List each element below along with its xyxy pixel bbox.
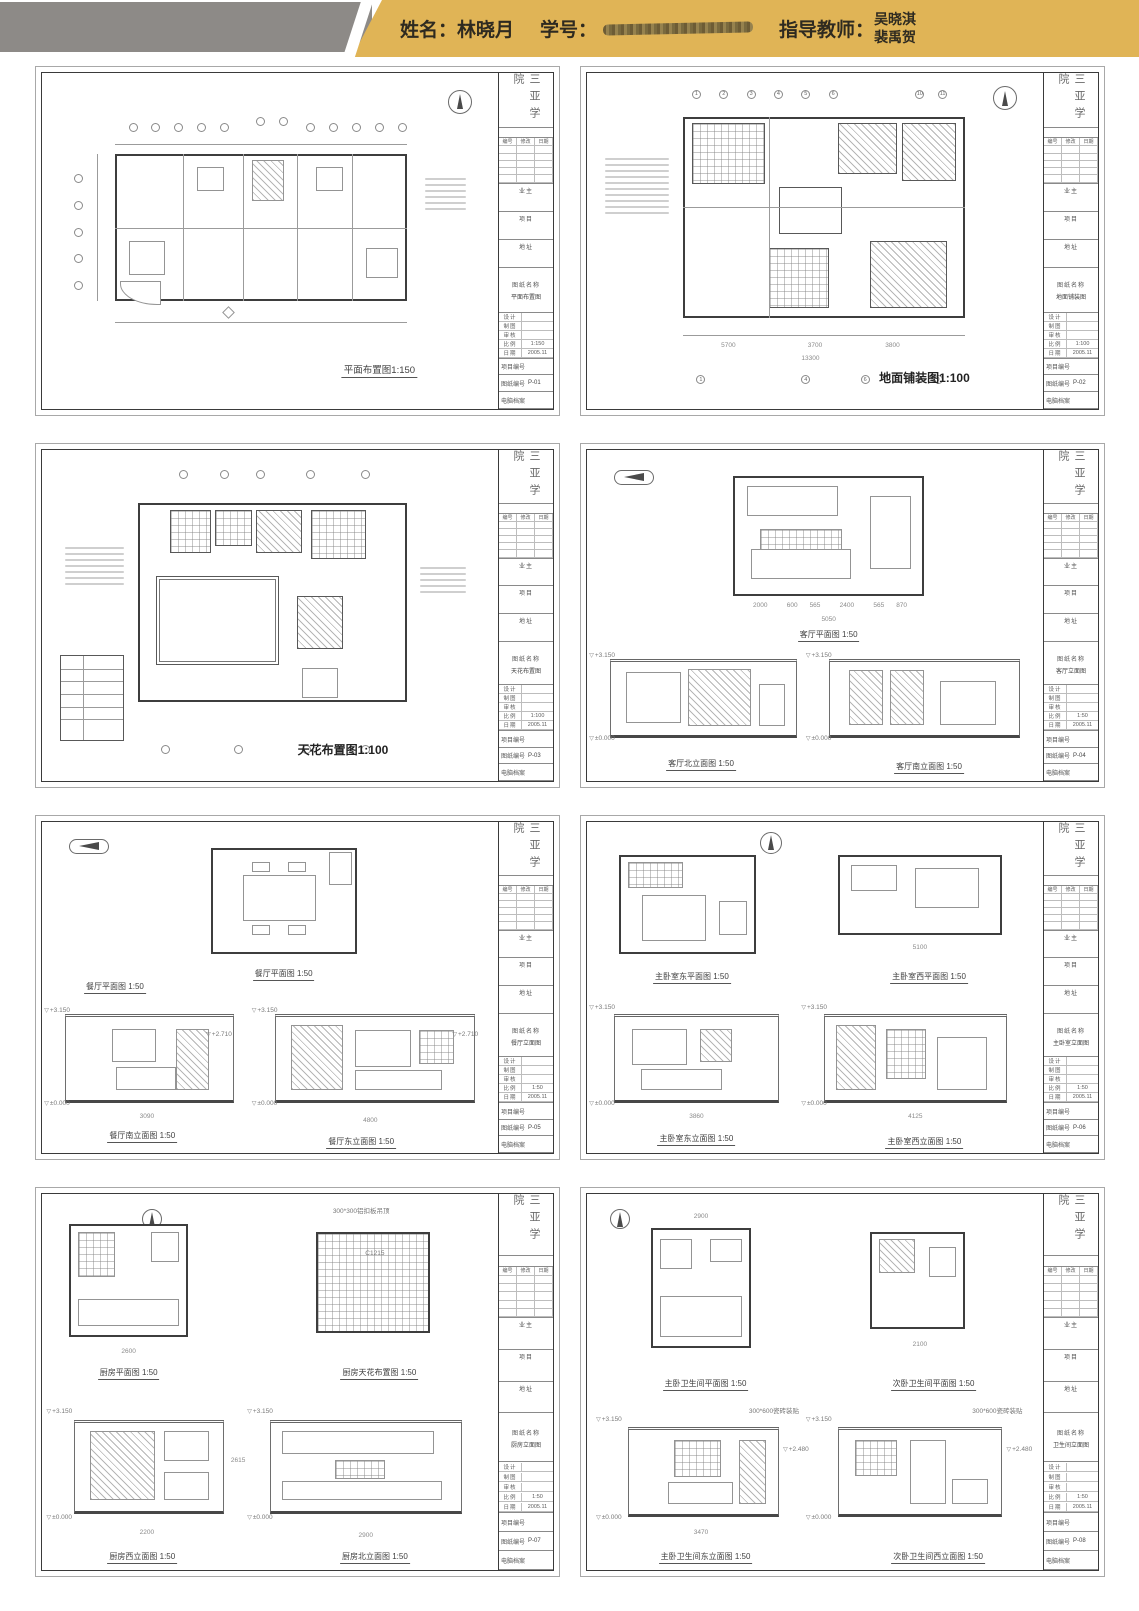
drawing-caption: 餐厅平面图 1:50 xyxy=(84,981,146,994)
level-marker: ▽+3.150 xyxy=(47,1408,73,1415)
dim-label: 2000 xyxy=(753,602,767,609)
axis-bubble: 5 xyxy=(801,90,810,99)
level-marker: ▽+3.150 xyxy=(806,1416,832,1423)
furniture xyxy=(870,496,911,569)
drawing-area-bathrooms: 2900 2100 主卧卫生间平面图 1:50 次卧卫生间平面图 1:50 30… xyxy=(587,1194,1043,1570)
owner-box: 业主 xyxy=(1044,184,1098,212)
paved-room xyxy=(870,241,948,308)
axis-bubble: 11 xyxy=(938,90,947,99)
drawing-name-box: 图纸名称 地面铺装图 xyxy=(1044,268,1098,312)
sheet-no-box: 图纸编号P-03 xyxy=(499,748,553,765)
title-block-spacer xyxy=(499,504,553,514)
project-box: 项目 xyxy=(1044,212,1098,240)
level-triangle-icon: ▽ xyxy=(47,1408,52,1415)
scale-value: 1:150 xyxy=(522,341,553,347)
drawing-caption: 地面铺装图1:100 xyxy=(877,369,972,387)
header-content: 姓名： 林晓月 学号： 指导教师： 吴晓淇 裴禹贺 xyxy=(400,0,1129,57)
project-no-box: 项目编号 xyxy=(1044,359,1098,376)
level-triangle-icon: ▽ xyxy=(247,1408,252,1415)
level-marker: ▽+3.150 xyxy=(252,1007,278,1014)
level-triangle-icon: ▽ xyxy=(596,1416,601,1423)
rev-col-header: 修改 xyxy=(517,138,535,145)
sheet-no-value: P-01 xyxy=(528,380,541,386)
archive-box: 电脑档案 xyxy=(1044,764,1098,781)
ceiling-lamp-zone xyxy=(302,668,338,698)
drawing-caption: 主卧室东平面图 1:50 xyxy=(653,971,731,984)
ceiling-zone xyxy=(256,510,302,553)
title-block-spacer xyxy=(1044,504,1098,514)
kitchen-ceiling-plan xyxy=(316,1232,430,1334)
north-arrow-icon xyxy=(610,1209,630,1229)
drawing-caption: 厨房西立面图 1:50 xyxy=(107,1551,177,1564)
paved-room xyxy=(838,123,897,173)
drawing-board: 平面布置图1:150 三亚学院 编号修改日期 业主 项目 地址 图纸名称 平面布… xyxy=(35,66,1105,1577)
date-value: 2005.11 xyxy=(1067,1094,1098,1100)
title-block-spacer xyxy=(499,876,553,886)
student-id-label: 学号： xyxy=(540,15,597,42)
level-marker: ▽+3.150 xyxy=(247,1408,273,1415)
drawing-name-box: 图纸名称 天花布置图 xyxy=(499,642,553,685)
owner-box: 业主 xyxy=(499,184,553,212)
scale-value: 1:100 xyxy=(1067,341,1098,347)
note-label: C1215 xyxy=(365,1250,384,1257)
archive-box: 电脑档案 xyxy=(499,1136,553,1153)
revision-table: 编号修改日期 xyxy=(1044,514,1098,558)
student-name-field: 姓名： 林晓月 xyxy=(400,15,514,42)
project-box: 项目 xyxy=(499,212,553,240)
drawing-caption: 客厅南立面图 1:50 xyxy=(894,761,964,774)
north-arrow-icon xyxy=(69,839,109,854)
elevation-north xyxy=(270,1420,462,1514)
vanity xyxy=(851,865,897,891)
furniture xyxy=(316,167,343,191)
stair-core xyxy=(252,160,284,200)
level-triangle-icon: ▽ xyxy=(589,735,594,742)
title-block: 三亚学院 编号修改日期 业主 项目 地址 图纸名称 平面布置图 设计 制图 审核… xyxy=(499,73,553,409)
furniture xyxy=(366,248,398,278)
revision-table: 编号修改日期 xyxy=(1044,138,1098,183)
sink xyxy=(710,1239,742,1262)
room xyxy=(779,187,843,234)
sheet-no-value: P-02 xyxy=(1073,380,1086,386)
title-block-spacer xyxy=(1044,128,1098,138)
school-name: 三亚学院 xyxy=(1044,1194,1098,1256)
axis-bubble: 3 xyxy=(747,90,756,99)
drawing-caption: 平面布置图1:150 xyxy=(342,362,417,378)
level-marker: ▽±0.000 xyxy=(806,735,831,742)
advisor-label: 指导教师： xyxy=(779,15,874,42)
level-triangle-icon: ▽ xyxy=(806,735,811,742)
north-arrow-icon xyxy=(760,832,782,854)
drawing-area-master-bedroom: 5100 主卧室东平面图 1:50 主卧室西平面图 1:50 ▽+3.150 ▽… xyxy=(587,822,1043,1153)
header-gray-band xyxy=(0,2,372,52)
school-name: 三亚学院 xyxy=(499,73,553,128)
date-value: 2005.11 xyxy=(522,350,553,356)
info-table: 设计 制图 审核 比例1:100 日期2005.11 xyxy=(499,685,553,731)
illegible-notes xyxy=(65,543,124,589)
level-triangle-icon: ▽ xyxy=(783,1446,788,1453)
level-marker: ▽±0.000 xyxy=(806,1514,831,1521)
info-table: 设计 制图 审核 比例1:50 日期2005.11 xyxy=(1044,1057,1098,1103)
rev-col-header: 日期 xyxy=(1080,886,1098,893)
sofa xyxy=(751,549,851,579)
level-triangle-icon: ▽ xyxy=(806,652,811,659)
redacted-student-id xyxy=(603,21,753,35)
owner-box: 业主 xyxy=(499,559,553,587)
scale-value: 1:50 xyxy=(1067,1085,1098,1091)
rev-col-header: 日期 xyxy=(535,886,553,893)
level-marker: ▽+3.150 xyxy=(589,1004,615,1011)
dim-label: 3700 xyxy=(808,342,822,349)
drawing-caption: 主卧室西平面图 1:50 xyxy=(890,971,968,984)
title-block: 三亚学院 编号修改日期 业主 项目 地址 图纸名称 天花布置图 设计 制图 审核… xyxy=(499,450,553,781)
level-triangle-icon: ▽ xyxy=(47,1514,52,1521)
rev-col-header: 修改 xyxy=(517,514,535,521)
north-arrow-icon xyxy=(993,86,1017,110)
level-triangle-icon: ▽ xyxy=(589,1004,594,1011)
rev-col-header: 修改 xyxy=(1062,514,1080,521)
sheet-no-box: 图纸编号P-05 xyxy=(499,1120,553,1137)
bed xyxy=(642,895,706,941)
level-marker: ▽+3.150 xyxy=(589,652,615,659)
sheet-no-box: 图纸编号P-06 xyxy=(1044,1120,1098,1137)
paved-room xyxy=(902,123,957,180)
project-no-box: 项目编号 xyxy=(499,731,553,748)
name-value: 林晓月 xyxy=(457,15,514,42)
drawing-caption: 厨房北立面图 1:50 xyxy=(340,1551,410,1564)
wardrobe xyxy=(628,862,683,888)
bathtub xyxy=(660,1296,742,1337)
rev-col-header: 编号 xyxy=(499,886,517,893)
drawing-caption: 主卧卫生间东立面图 1:50 xyxy=(659,1551,753,1564)
drawing-name-box: 图纸名称 卫生间立面图 xyxy=(1044,1413,1098,1462)
symbol-diamond xyxy=(223,306,236,319)
date-value: 2005.11 xyxy=(1067,722,1098,728)
drawing-name-value: 卫生间立面图 xyxy=(1053,1440,1089,1449)
info-table: 设计 制图 审核 比例1:50 日期2005.11 xyxy=(499,1462,553,1513)
level-triangle-icon: ▽ xyxy=(252,1007,257,1014)
level-triangle-icon: ▽ xyxy=(589,652,594,659)
rev-col-header: 修改 xyxy=(1062,138,1080,145)
sheet-no-box: 图纸编号P-01 xyxy=(499,375,553,392)
address-box: 地址 xyxy=(499,1382,553,1414)
drawing-caption: 客厅北立面图 1:50 xyxy=(666,758,736,771)
dim-label: 3470 xyxy=(694,1529,708,1536)
rev-col-header: 编号 xyxy=(499,514,517,521)
title-block: 三亚学院 编号修改日期 业主 项目 地址 图纸名称 地面铺装图 设计 制图 审核… xyxy=(1044,73,1098,409)
date-value: 2005.11 xyxy=(522,1094,553,1100)
drawing-name-value: 餐厅立面图 xyxy=(511,1038,541,1047)
sheet-no-box: 图纸编号P-04 xyxy=(1044,748,1098,765)
drawing-area-floor-paving: 1 2 3 4 5 6 10 11 5700 3700 38 xyxy=(587,73,1043,409)
sheet-no-value: P-05 xyxy=(528,1125,541,1131)
drawing-name-box: 图纸名称 主卧室立面图 xyxy=(1044,1014,1098,1057)
info-table: 设计 制图 审核 比例1:100 日期2005.11 xyxy=(1044,313,1098,359)
chair xyxy=(288,925,306,935)
level-marker: ▽+3.150 xyxy=(44,1007,70,1014)
level-marker: ▽±0.000 xyxy=(589,1100,614,1107)
project-no-box: 项目编号 xyxy=(499,1103,553,1120)
drawing-area-dining-room: 餐厅平面图 1:50 餐厅平面图 1:50 ▽+3.150 ▽+3.150 ▽+… xyxy=(42,822,498,1153)
level-triangle-icon: ▽ xyxy=(252,1100,257,1107)
rev-col-header: 日期 xyxy=(535,138,553,145)
axis-bubble: 1 xyxy=(692,90,701,99)
sheet-ceiling-plan: 天花布置图1:100 三亚学院 编号修改日期 业主 项目 地址 图纸名称 天花布… xyxy=(35,443,560,788)
title-block: 三亚学院 编号修改日期 业主 项目 地址 图纸名称 厨房立面图 设计 制图 审核… xyxy=(499,1194,553,1570)
owner-box: 业主 xyxy=(499,931,553,959)
level-triangle-icon: ▽ xyxy=(452,1031,457,1038)
ceiling-feature xyxy=(156,576,279,665)
axis-bubble: 6 xyxy=(829,90,838,99)
drawing-name-value: 主卧室立面图 xyxy=(1053,1038,1089,1047)
elevation-south xyxy=(65,1014,234,1103)
level-triangle-icon: ▽ xyxy=(801,1100,806,1107)
furniture xyxy=(129,241,165,275)
counter xyxy=(78,1299,178,1325)
project-no-box: 项目编号 xyxy=(1044,1513,1098,1532)
archive-box: 电脑档案 xyxy=(499,1551,553,1570)
student-id-field: 学号： xyxy=(540,15,753,42)
sheet-floor-plan: 平面布置图1:150 三亚学院 编号修改日期 业主 项目 地址 图纸名称 平面布… xyxy=(35,66,560,416)
drawing-caption: 厨房天花布置图 1:50 xyxy=(341,1367,419,1380)
name-label: 姓名： xyxy=(400,15,457,42)
dim-label: 870 xyxy=(896,602,907,609)
north-arrow-icon xyxy=(448,90,472,114)
drawing-caption: 次卧卫生间平面图 1:50 xyxy=(891,1378,977,1391)
rev-col-header: 编号 xyxy=(1044,886,1062,893)
drawing-caption: 天花布置图1:100 xyxy=(296,741,391,759)
rev-col-header: 编号 xyxy=(1044,138,1062,145)
owner-box: 业主 xyxy=(1044,1318,1098,1350)
chair xyxy=(252,925,270,935)
drawing-caption: 主卧室东立面图 1:50 xyxy=(658,1133,736,1146)
school-name: 三亚学院 xyxy=(1044,73,1098,128)
address-box: 地址 xyxy=(499,240,553,268)
elevation-east xyxy=(275,1014,476,1103)
elevation-south xyxy=(829,659,1021,738)
dim-label: 600 xyxy=(787,602,798,609)
archive-box: 电脑档案 xyxy=(499,392,553,409)
illegible-notes xyxy=(425,174,466,214)
dim-label: 4125 xyxy=(908,1113,922,1120)
title-block: 三亚学院 编号修改日期 业主 项目 地址 图纸名称 餐厅立面图 设计 制图 审核… xyxy=(499,822,553,1153)
revision-table: 编号修改日期 xyxy=(499,886,553,930)
archive-box: 电脑档案 xyxy=(1044,1551,1098,1570)
drawing-area-ceiling-plan: 天花布置图1:100 xyxy=(42,450,498,781)
level-marker: ▽+2.710 xyxy=(206,1031,232,1038)
revision-table: 编号修改日期 xyxy=(1044,1267,1098,1318)
revision-table: 编号修改日期 xyxy=(499,138,553,183)
legend-table xyxy=(60,655,124,741)
drawing-caption: 主卧卫生间平面图 1:50 xyxy=(663,1378,749,1391)
sheet-living-room: 2000 600 565 2400 565 870 5050 客厅平面图 1:5… xyxy=(580,443,1105,788)
project-box: 项目 xyxy=(499,586,553,614)
date-value: 2005.11 xyxy=(1067,1504,1098,1510)
school-name: 三亚学院 xyxy=(1044,450,1098,504)
dim-label: 5700 xyxy=(721,342,735,349)
elevation-second-bath-west xyxy=(838,1427,1002,1517)
dim-label: 5100 xyxy=(913,944,927,951)
elevation-west xyxy=(824,1014,1006,1103)
sheet-kitchen: 2600 300*300铝扣板吊顶 C1215 厨房平面图 1:50 厨房天花布… xyxy=(35,1187,560,1577)
owner-box: 业主 xyxy=(499,1318,553,1350)
toilet xyxy=(660,1239,692,1269)
level-triangle-icon: ▽ xyxy=(1007,1446,1012,1453)
level-triangle-icon: ▽ xyxy=(44,1007,49,1014)
owner-box: 业主 xyxy=(1044,931,1098,959)
paved-room xyxy=(692,123,765,183)
drawing-area-kitchen: 2600 300*300铝扣板吊顶 C1215 厨房平面图 1:50 厨房天花布… xyxy=(42,1194,498,1570)
toilet xyxy=(929,1247,956,1277)
info-table: 设计 制图 审核 比例1:50 日期2005.11 xyxy=(1044,685,1098,731)
rev-col-header: 编号 xyxy=(1044,514,1062,521)
counter xyxy=(78,1232,114,1277)
sheet-no-box: 图纸编号P-07 xyxy=(499,1532,553,1551)
rev-col-header: 日期 xyxy=(535,514,553,521)
drawing-caption: 主卧室西立面图 1:50 xyxy=(886,1136,964,1149)
sheet-no-value: P-04 xyxy=(1073,753,1086,759)
drawing-area-floor-plan: 平面布置图1:150 xyxy=(42,73,498,409)
level-triangle-icon: ▽ xyxy=(806,1416,811,1423)
dim-label: 2400 xyxy=(840,602,854,609)
elevation-north xyxy=(610,659,797,738)
level-triangle-icon: ▽ xyxy=(247,1514,252,1521)
level-marker: ▽+2.710 xyxy=(452,1031,478,1038)
sheet-no-value: P-06 xyxy=(1073,1125,1086,1131)
level-marker: ▽+2.480 xyxy=(783,1446,809,1453)
axis-bubble: 1 xyxy=(696,375,705,384)
sheet-no-value: P-08 xyxy=(1073,1538,1086,1544)
sideboard xyxy=(329,852,352,885)
drawing-area-living-room: 2000 600 565 2400 565 870 5050 客厅平面图 1:5… xyxy=(587,450,1043,781)
sheet-bathrooms: 2900 2100 主卧卫生间平面图 1:50 次卧卫生间平面图 1:50 30… xyxy=(580,1187,1105,1577)
advisor-names: 吴晓淇 裴禹贺 xyxy=(874,11,916,46)
sheet-no-box: 图纸编号P-08 xyxy=(1044,1532,1098,1551)
dim-label: 3090 xyxy=(140,1113,154,1120)
info-table: 设计 制图 审核 比例1:50 日期2005.11 xyxy=(1044,1462,1098,1513)
dim-label: 2900 xyxy=(694,1213,708,1220)
title-block-spacer xyxy=(1044,1256,1098,1268)
drawing-name-value: 天花布置图 xyxy=(511,666,541,675)
title-block: 三亚学院 编号修改日期 业主 项目 地址 图纸名称 卫生间立面图 设计 制图 审… xyxy=(1044,1194,1098,1570)
ceiling-zone xyxy=(170,510,211,553)
archive-box: 电脑档案 xyxy=(1044,392,1098,409)
revision-table: 编号修改日期 xyxy=(499,1267,553,1318)
address-box: 地址 xyxy=(499,614,553,642)
elevation-master-bath-east xyxy=(628,1427,778,1517)
rev-col-header: 修改 xyxy=(1062,886,1080,893)
project-no-box: 项目编号 xyxy=(1044,1103,1098,1120)
dim-label: 2600 xyxy=(121,1348,135,1355)
advisor-2: 裴禹贺 xyxy=(874,29,916,47)
dresser xyxy=(719,901,746,934)
dim-label: 2615 xyxy=(231,1457,245,1464)
rev-col-header: 编号 xyxy=(499,138,517,145)
project-box: 项目 xyxy=(1044,586,1098,614)
page-header: 姓名： 林晓月 学号： 指导教师： 吴晓淇 裴禹贺 xyxy=(0,0,1139,58)
rev-col-header: 日期 xyxy=(1080,1267,1098,1274)
drawing-name-box: 图纸名称 客厅立面图 xyxy=(1044,642,1098,685)
bed xyxy=(915,868,979,908)
info-table: 设计 制图 审核 比例1:150 日期2005.11 xyxy=(499,313,553,359)
axis-bubble: 2 xyxy=(719,90,728,99)
axis-bubble: 6 xyxy=(861,375,870,384)
level-marker: ▽+2.480 xyxy=(1007,1446,1033,1453)
project-no-box: 项目编号 xyxy=(499,359,553,376)
title-block-spacer xyxy=(499,128,553,138)
date-value: 2005.11 xyxy=(1067,350,1098,356)
rev-col-header: 日期 xyxy=(535,1267,553,1274)
dim-label: 565 xyxy=(810,602,821,609)
drawing-caption: 次卧卫生间西立面图 1:50 xyxy=(891,1551,985,1564)
scale-value: 1:50 xyxy=(522,1085,553,1091)
illegible-notes xyxy=(605,154,669,218)
level-triangle-icon: ▽ xyxy=(589,1100,594,1107)
level-triangle-icon: ▽ xyxy=(206,1031,211,1038)
level-triangle-icon: ▽ xyxy=(801,1004,806,1011)
scale-value: 1:100 xyxy=(522,713,553,719)
shower xyxy=(879,1239,915,1273)
title-block: 三亚学院 编号修改日期 业主 项目 地址 图纸名称 客厅立面图 设计 制图 审核… xyxy=(1044,450,1098,781)
drawing-name-box: 图纸名称 餐厅立面图 xyxy=(499,1014,553,1057)
revision-table: 编号修改日期 xyxy=(499,514,553,558)
dim-label: 13300 xyxy=(801,355,819,362)
level-marker: ▽±0.000 xyxy=(44,1100,69,1107)
rev-col-header: 日期 xyxy=(1080,514,1098,521)
sheet-no-value: P-07 xyxy=(528,1538,541,1544)
dim-label: 2200 xyxy=(140,1529,154,1536)
dining-table xyxy=(243,875,316,921)
sheet-dining-room: 餐厅平面图 1:50 餐厅平面图 1:50 ▽+3.150 ▽+3.150 ▽+… xyxy=(35,815,560,1160)
dim-label: 5050 xyxy=(821,616,835,623)
drawing-name-value: 平面布置图 xyxy=(511,292,541,301)
drawing-name-value: 地面铺装图 xyxy=(1056,292,1086,301)
drawing-caption: 餐厅南立面图 1:50 xyxy=(107,1130,177,1143)
level-marker: ▽±0.000 xyxy=(596,1514,621,1521)
drawing-name-value: 客厅立面图 xyxy=(1056,666,1086,675)
axis-bubble: 4 xyxy=(774,90,783,99)
owner-box: 业主 xyxy=(1044,559,1098,587)
sheet-floor-paving: 1 2 3 4 5 6 10 11 5700 3700 38 xyxy=(580,66,1105,416)
scale-value: 1:50 xyxy=(1067,1494,1098,1500)
level-marker: ▽+3.150 xyxy=(806,652,832,659)
dim-label: 3860 xyxy=(689,1113,703,1120)
level-marker: ▽±0.000 xyxy=(247,1514,272,1521)
note-label: 300*300铝扣板吊顶 xyxy=(333,1205,390,1215)
sheet-master-bedroom: 5100 主卧室东平面图 1:50 主卧室西平面图 1:50 ▽+3.150 ▽… xyxy=(580,815,1105,1160)
scale-value: 1:50 xyxy=(1067,713,1098,719)
drawing-caption: 餐厅东立面图 1:50 xyxy=(326,1136,396,1149)
note-label: 300*600瓷砖装贴 xyxy=(749,1405,799,1415)
info-table: 设计 制图 审核 比例1:50 日期2005.11 xyxy=(499,1057,553,1103)
dim-label: 565 xyxy=(873,602,884,609)
ceiling-zone xyxy=(215,510,251,546)
advisor-field: 指导教师： 吴晓淇 裴禹贺 xyxy=(779,11,916,46)
address-box: 地址 xyxy=(1044,614,1098,642)
scale-value: 1:50 xyxy=(522,1494,553,1500)
sheet-no-box: 图纸编号P-02 xyxy=(1044,375,1098,392)
project-box: 项目 xyxy=(1044,958,1098,986)
drawing-name-box: 图纸名称 厨房立面图 xyxy=(499,1413,553,1462)
advisor-1: 吴晓淇 xyxy=(874,11,916,29)
dim-label: 4800 xyxy=(363,1117,377,1124)
title-block-spacer xyxy=(1044,876,1098,886)
rev-col-header: 修改 xyxy=(1062,1267,1080,1274)
rev-col-header: 编号 xyxy=(1044,1267,1062,1274)
school-name: 三亚学院 xyxy=(499,822,553,876)
title-block-spacer xyxy=(499,1256,553,1268)
illegible-notes xyxy=(420,563,466,597)
